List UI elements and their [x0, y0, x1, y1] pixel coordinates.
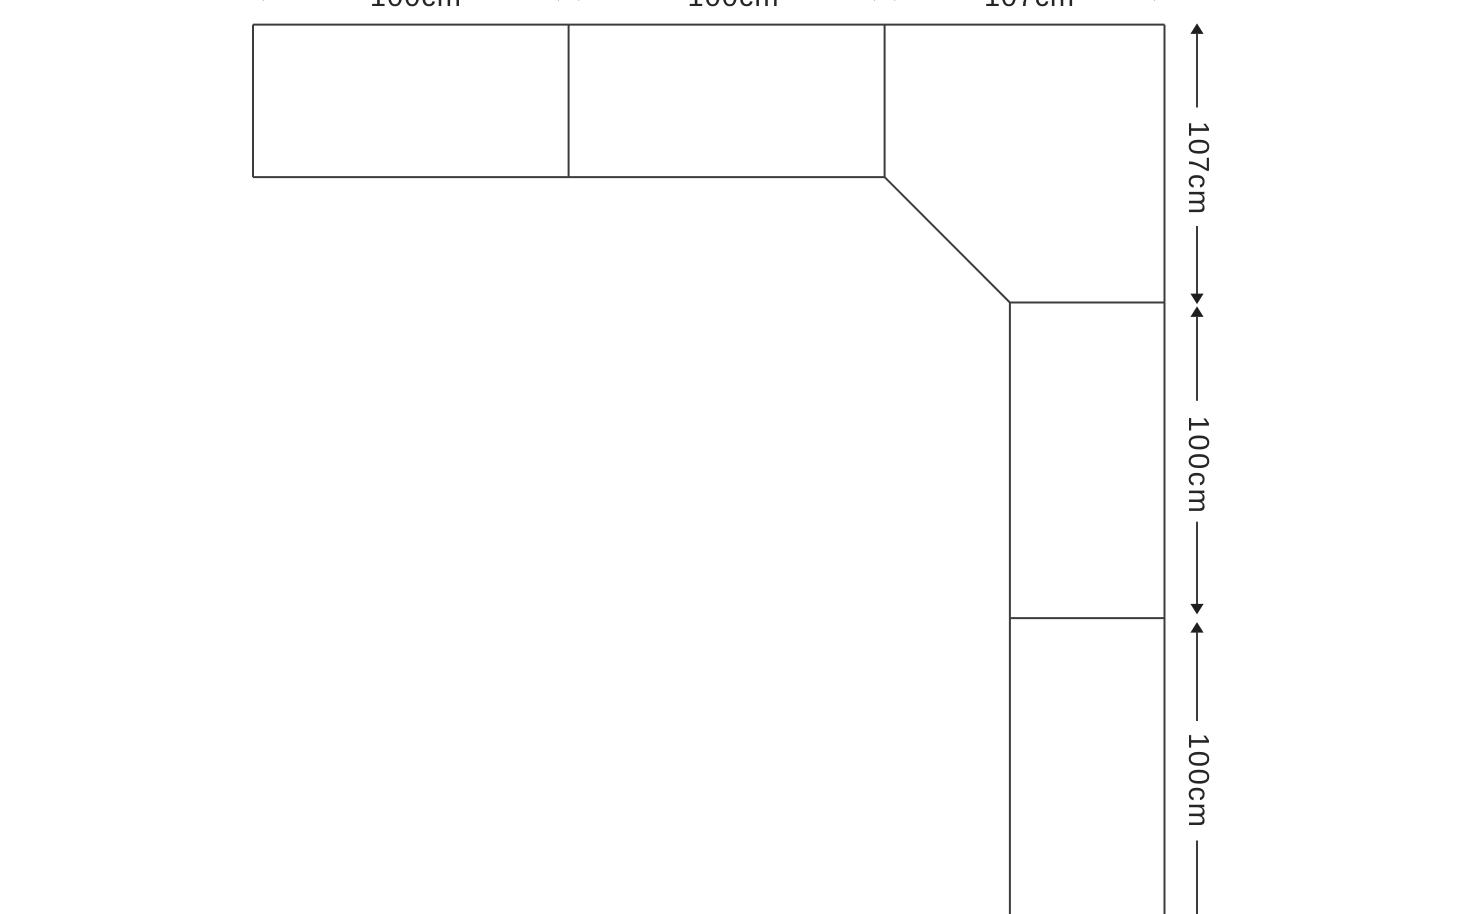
- svg-text:100cm: 100cm: [688, 0, 779, 13]
- svg-text:100cm: 100cm: [1182, 733, 1214, 827]
- svg-text:100cm: 100cm: [1182, 416, 1214, 513]
- svg-text:100cm: 100cm: [370, 0, 461, 13]
- svg-text:107cm: 107cm: [1182, 121, 1214, 214]
- svg-text:107cm: 107cm: [984, 0, 1074, 13]
